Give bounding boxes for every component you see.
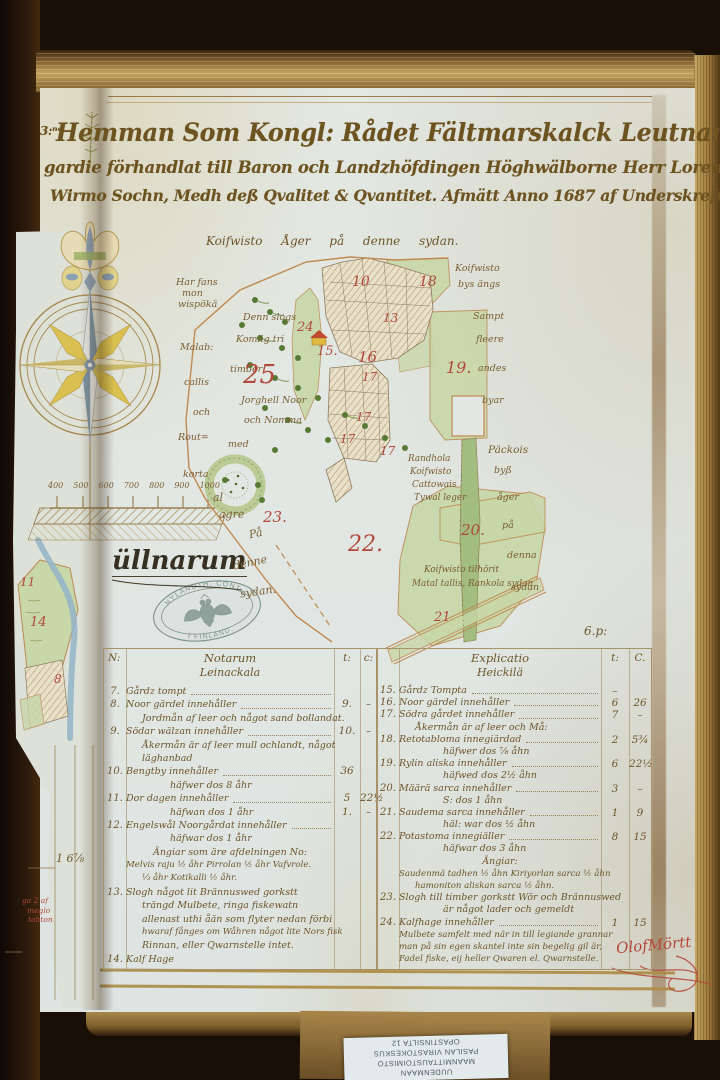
table-row: 17. Södra gårdet innehåller 7 – [377,709,651,721]
row-text: Åkermån är af leer och Må: [399,722,601,734]
row-number [377,929,399,941]
table-row: 21. Saudema sarca innehåller 1 9 [377,807,651,819]
row-tunnor: 6 [601,697,629,709]
row-tunnor: 8 [601,831,629,843]
table-header: Notarum [126,651,334,665]
row-text: Rylin aliska innehåller [399,758,601,770]
row-text: S: dos 1 åhn [399,795,601,807]
row-cappar [360,846,377,859]
row-cappar [360,886,377,899]
table-row: 10. Bengtby innehåller 36 [104,765,377,778]
map-note: callis [184,377,209,388]
row-text: Noor gärdel innehåller [126,698,334,711]
row-tunnor [601,904,629,916]
row-tunnor [601,880,629,892]
table-row: 15. Gårdz Tompta – [377,685,651,697]
red-note-line: ga 2 af [22,896,48,905]
row-tunnor [334,886,360,899]
table-row: häfwar dos 1 åhr [104,832,377,845]
archive-stamp: NYLANDTH. CONT. I FINLAND. [149,572,266,649]
row-cappar: 15 [629,831,651,843]
row-text: Gårdz tompt [126,685,334,698]
row-tunnor: 6 [601,758,629,770]
row-text: Södra gårdet innehåller [399,709,601,721]
map-note: Rout= [178,432,209,443]
row-tunnor [334,846,360,859]
table-row: 13. Slogh något lit Brännuswed gorkstt [104,886,377,899]
row-tunnor [334,819,360,832]
row-cappar: – [360,698,377,711]
row-text: hwaraf fånges om Wåhren något lite Nors … [126,926,334,939]
table-row: Fadel fiske, eij heller Qwaren el. Qwarn… [377,953,651,965]
page-title-line1: Hemman Som Kongl: Rådet Fältmarskalck Le… [56,118,720,147]
table-row: 7. Gårdz tompt [104,685,377,698]
row-text: Kalfhage innehåller [399,917,601,929]
row-cappar: 26 [629,697,651,709]
table-row: 22. Potastoma innegiäller 8 15 [377,831,651,843]
scale-tick: 1000 [200,481,220,490]
parcel-number: 17 [340,432,355,446]
table-row: häfwer dos ⅞ åhn [377,746,651,758]
row-tunnor: 10. [334,725,360,738]
row-number [104,859,126,872]
table-row: Saudenmä tadhen ½ åhn Kiriyorlan sarca ½… [377,868,651,880]
table-header: Explicatio [399,651,601,665]
parcel-number: 13 [383,311,398,325]
row-number [104,926,126,939]
row-cappar [629,819,651,831]
row-text: Mulbete samfelt med när in till legiande… [399,929,601,941]
row-text: Bengtby innehåller [126,765,334,778]
row-cappar [629,892,651,904]
map-note: fleere [476,334,504,345]
table-row: häfwed dos 2½ åhn [377,770,651,782]
col-header-no: N: [108,652,120,664]
row-text: häfwer dos ⅞ åhn [399,746,601,758]
row-number [377,746,399,758]
row-cappar: – [629,709,651,721]
row-cappar: 22½ [629,758,651,770]
row-number [377,722,399,734]
row-cappar [629,685,651,697]
row-tunnor [334,685,360,698]
table-row: häfwer dos 8 åhr [104,779,377,792]
row-number: 16. [377,697,399,709]
row-tunnor [334,712,360,725]
table-row: 9. Södar wälzan innehåller 10. – [104,725,377,738]
row-number [377,904,399,916]
row-number: 13. [104,886,126,899]
table-row: Mulbete samfelt med när in till legiande… [377,929,651,941]
row-cappar [360,859,377,872]
table-row: Åkermån är af leer och Må: [377,722,651,734]
row-tunnor [334,779,360,792]
photo-of-historical-map: NYLANDTH. CONT. I FINLAND. 3:ⁿᵉ Hemman S… [0,0,720,1080]
row-number [377,880,399,892]
explicatio-table-right: Explicatio Heickilä t: C. 15. Gårdz Tomp… [376,648,652,970]
row-text: läghanbad [126,752,334,765]
col-header-tunnor: t: [601,652,629,664]
table-rows: 7. Gårdz tompt 8. Noor gärdel innehåller… [104,685,377,966]
row-number [104,752,126,765]
row-cappar [629,843,651,855]
sticker-text: UUDENMAANMAANMITTAUSTOIMISTOPASILAN VIRA… [373,1037,479,1079]
row-number [104,806,126,819]
row-number [104,899,126,912]
map-note: på [502,520,514,531]
row-cappar [629,856,651,868]
row-number: 21. [377,807,399,819]
parcel-number: 14 [30,615,47,630]
row-number: 19. [377,758,399,770]
col-header-tunnor: t: [334,652,360,664]
row-text: häfwan dos 1 åhr [126,806,334,819]
row-cappar: 5¾ [629,734,651,746]
table-row: 24. Kalfhage innehåller 1 15 [377,917,651,929]
table-row: 16. Noor gärdel innehåller 6 26 [377,697,651,709]
row-text: Melvis raju ½ åhr Pirrolan ½ åhr Vafvrol… [126,859,334,872]
row-text: häfwer dos 8 åhr [126,779,334,792]
row-tunnor [601,746,629,758]
row-number [377,953,399,965]
row-cappar [629,770,651,782]
row-tunnor [334,926,360,939]
row-number [104,739,126,752]
table-row: S: dos 1 åhn [377,795,651,807]
parcel-number: 25 [243,360,276,390]
row-cappar [360,739,377,752]
row-tunnor: – [601,685,629,697]
sticker-line: OPASTINSILTA 12 [391,1038,459,1049]
map-note: andes [478,363,506,374]
map-note: korta [183,469,209,480]
parcel-number: 23. [263,508,287,526]
row-number [377,770,399,782]
table-row: häfwar dos 3 åhn [377,843,651,855]
row-text: häfwar dos 1 åhr [126,832,334,845]
map-note: På [248,526,264,542]
row-number [377,795,399,807]
row-text: Kalf Hage [126,953,334,966]
row-tunnor [334,739,360,752]
row-tunnor [601,856,629,868]
row-number: 18. [377,734,399,746]
row-number [104,939,126,952]
row-number [104,913,126,926]
col-header-cappar: c: [360,652,377,664]
row-text: Engelswål Noorgårdat innehåller [126,819,334,832]
row-cappar [360,872,377,885]
row-number [377,941,399,953]
row-tunnor [334,832,360,845]
red-note-line: tahton [28,915,53,924]
row-number: 9. [104,725,126,738]
row-cappar [360,926,377,939]
row-tunnor [601,868,629,880]
row-text: Potastoma innegiäller [399,831,601,843]
row-cappar [360,819,377,832]
village-name: Leinackala [126,666,334,679]
table-row: hwaraf fånges om Wåhren något lite Nors … [104,926,377,939]
parcel-number: 18 [419,274,437,290]
map-note: åger [497,492,519,503]
row-number: 22. [377,831,399,843]
left-page-table-value: 1 6⅞ [56,852,84,865]
map-note: mon [182,288,203,299]
row-number [377,819,399,831]
row-text: Dor dagen innehåller [126,792,334,805]
table-row: 12. Engelswål Noorgårdat innehåller [104,819,377,832]
table-row: 14. Kalf Hage [104,953,377,966]
row-tunnor: 3 [601,783,629,795]
table-row: Ängiar: [377,856,651,868]
row-tunnor [601,819,629,831]
map-note: Malab: [180,342,213,353]
row-tunnor: 1. [334,806,360,819]
row-number: 23. [377,892,399,904]
row-text: man på sin egen skantel inte sin begelig… [399,941,601,953]
row-number: 20. [377,783,399,795]
row-text: Gårdz Tompta [399,685,601,697]
row-tunnor: 36 [334,765,360,778]
map-note: byß [494,465,512,476]
row-text: Slogh till timber gorkstt Wör och Brännu… [399,892,601,904]
row-number [104,846,126,859]
map-note: al [213,491,223,504]
row-tunnor [334,859,360,872]
place-label: üllnarum [112,546,247,577]
parcel-number: 17 [356,410,371,424]
scale-tick: 900 [174,481,189,490]
table-row: Ängiar som äre afdelningen No: [104,846,377,859]
row-tunnor: 5 [334,792,360,805]
parcel-number: 10 [352,274,370,290]
row-text: trängd Mulbete, ringa fiskewatn [126,899,334,912]
row-tunnor [334,899,360,912]
row-tunnor: 7 [601,709,629,721]
row-number: 8. [104,698,126,711]
sticker-line: UUDENMAAN [400,1068,452,1078]
row-cappar [629,746,651,758]
table-row: allenast uthi åän som flyter nedan förbi [104,913,377,926]
row-tunnor [334,872,360,885]
map-note: bys ängs [458,279,500,290]
row-number: 17. [377,709,399,721]
row-text: allenast uthi åän som flyter nedan förbi [126,913,334,926]
scale-tick: 400 [48,481,63,490]
archive-sticker: UUDENMAANMAANMITTAUSTOIMISTOPASILAN VIRA… [343,1034,508,1080]
row-cappar: – [360,725,377,738]
row-number [377,843,399,855]
map-note: byar [482,395,504,406]
red-note-line: meglo [27,906,50,915]
row-text: Rinnan, eller Qwarnstelle intet. [126,939,334,952]
row-cappar: – [629,783,651,795]
row-text: Noor gärdel innehåller [399,697,601,709]
row-text: Fadel fiske, eij heller Qwaren el. Qwarn… [399,953,601,965]
row-tunnor: 1 [601,917,629,929]
map-caption: Koifwisto Åger på denne sydan. [206,234,458,248]
row-cappar [629,722,651,734]
scale-tick: 600 [99,481,114,490]
row-text: Jordmån af leer och något sand bollandat… [126,712,334,725]
row-tunnor [601,795,629,807]
row-number [377,868,399,880]
row-text: hamoniton aliskan sarca ½ åhn. [399,880,601,892]
map-note: Randhola [408,454,450,464]
row-cappar: 9 [629,807,651,819]
parcel-number: 17 [362,370,377,384]
sticker-line: MAANMITTAUSTOIMISTO [377,1057,475,1069]
map-note: Tywal leger [414,493,466,503]
table-rows: 15. Gårdz Tompta – 16. Noor gärdel inneh… [377,685,651,965]
map-note: Koifwisto [455,263,500,274]
row-number [377,856,399,868]
row-tunnor: 9. [334,698,360,711]
table-row: Åkermån är af leer mull ochlandt, något [104,739,377,752]
row-text: Retotabloma innegiärdad [399,734,601,746]
row-number [104,832,126,845]
parcel-number: 20. [461,521,485,539]
map-note: denna [507,550,537,561]
row-cappar: 15 [629,917,651,929]
row-tunnor: 1 [601,807,629,819]
map-note: wispökä [178,299,217,310]
table-row: Melvis raju ½ åhr Pirrolan ½ åhr Vafvrol… [104,859,377,872]
map-note: Koifwisto tilhörit [424,565,499,575]
row-cappar [360,913,377,926]
table-row: hamoniton aliskan sarca ½ åhn. [377,880,651,892]
parcel-number: 15. [317,344,338,359]
row-number: 11. [104,792,126,805]
table-row: man på sin egen skantel inte sin begelig… [377,941,651,953]
row-number: 24. [377,917,399,929]
row-text: Slogh något lit Brännuswed gorkstt [126,886,334,899]
map-note: Koifwisto [410,467,451,477]
scale-tick-labels: 4005006007008009001000 [48,481,220,490]
village-name: Heickilä [399,666,601,679]
row-text: Saudema sarca innehåller [399,807,601,819]
row-cappar [360,832,377,845]
row-text: häl: war dos ½ åhn [399,819,601,831]
parcel-number: 17 [380,444,395,458]
row-tunnor [601,892,629,904]
table-row: är något lader och gemeldt [377,904,651,916]
table-row: Jordmån af leer och något sand bollandat… [104,712,377,725]
parcel-number: 11 [20,575,35,589]
row-number [104,779,126,792]
row-cappar [629,880,651,892]
row-tunnor [601,770,629,782]
row-cappar [629,795,651,807]
col-header-cappar: C. [629,652,651,664]
row-cappar [360,752,377,765]
row-number: 15. [377,685,399,697]
row-tunnor [334,953,360,966]
table-row: 8. Noor gärdel innehåller 9. – [104,698,377,711]
map-note: Jorghell Noor [241,395,306,406]
row-tunnor [334,939,360,952]
table-row: 23. Slogh till timber gorkstt Wör och Br… [377,892,651,904]
map-note: Cattowais [412,480,456,490]
parcel-number: 22. [348,532,383,557]
row-cappar: 22½ [360,792,377,805]
row-text: häfwed dos 2½ åhn [399,770,601,782]
row-number: 14. [104,953,126,966]
map-note: och [193,407,210,418]
table-row: 20. Määrä sarca innehåller 3 – [377,783,651,795]
row-text: Åkermån är af leer mull ochlandt, något [126,739,334,752]
row-number: 10. [104,765,126,778]
row-cappar [360,899,377,912]
table-row: läghanbad [104,752,377,765]
map-note: och Nomma [244,415,302,426]
map-note: Denn slogs [243,312,296,323]
row-cappar [360,712,377,725]
map-note: agre [219,508,244,521]
table-row: trängd Mulbete, ringa fiskewatn [104,899,377,912]
row-text: häfwar dos 3 åhn [399,843,601,855]
row-text: Saudenmä tadhen ½ åhn Kiriyorlan sarca ½… [399,868,601,880]
parcel-number: 21 [434,610,451,625]
row-text: ⅓ åhr Kotikalli ½ åhr. [126,872,334,885]
table-row: 19. Rylin aliska innehåller 6 22½ [377,758,651,770]
row-tunnor: 2 [601,734,629,746]
row-cappar [360,939,377,952]
row-number [104,872,126,885]
scale-tick: 800 [149,481,164,490]
scale-tick: 500 [73,481,88,490]
map-note: Matal tallis, Rankola sydan [412,579,533,589]
table-row: häfwan dos 1 åhr 1. – [104,806,377,819]
row-cappar [360,953,377,966]
parcel-number: 8 [54,672,62,686]
row-text: Määrä sarca innehåller [399,783,601,795]
table-row: 18. Retotabloma innegiärdad 2 5¾ [377,734,651,746]
table-row: ⅓ åhr Kotikalli ½ åhr. [104,872,377,885]
row-cappar [629,868,651,880]
row-tunnor [334,752,360,765]
row-number: 7. [104,685,126,698]
map-note: Komlig tri [236,334,284,345]
row-text: Ängiar: [399,856,601,868]
row-tunnor [601,843,629,855]
row-cappar: – [360,806,377,819]
parcel-number: 19. [446,358,471,377]
page-title-line3: Wirmo Sochn, Medh deß Qvalitet & Qvantit… [50,186,720,205]
table-row: häl: war dos ½ åhn [377,819,651,831]
row-cappar [360,685,377,698]
row-cappar [360,765,377,778]
parcel-number: 16 [358,348,377,366]
row-cappar [360,779,377,792]
row-tunnor [334,913,360,926]
row-text: Ängiar som äre afdelningen No: [126,846,334,859]
notarum-table-left: N: Notarum Leinackala t: c: 7. Gårdz tom… [103,648,378,970]
page-mark: 6.p: [584,624,607,638]
map-note: med [228,439,249,450]
row-number: 12. [104,819,126,832]
scale-tick: 700 [124,481,139,490]
row-text: är något lader och gemeldt [399,904,601,916]
row-cappar [629,904,651,916]
parcel-number: 24 [297,320,314,335]
row-number [104,712,126,725]
table-row: Rinnan, eller Qwarnstelle intet. [104,939,377,952]
row-text: Södar wälzan innehåller [126,725,334,738]
page-title-line2: gardie förhandlat till Baron och Landzhö… [44,158,720,177]
map-note: Päckois [488,444,528,456]
